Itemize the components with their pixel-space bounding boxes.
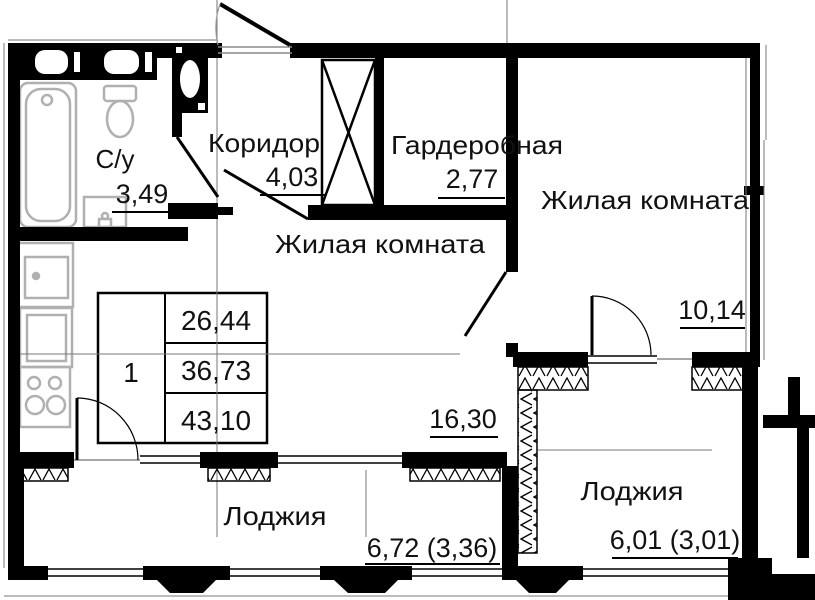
wall-right bbox=[750, 43, 760, 363]
entrance-threshold bbox=[218, 47, 292, 53]
room-label-corridor: Коридор bbox=[208, 128, 320, 158]
room-area-living-second: 10,14 bbox=[678, 295, 746, 325]
unit-number: 1 bbox=[123, 357, 139, 388]
rightroom-door-leaf bbox=[465, 272, 506, 336]
facade-pilaster-c bbox=[334, 580, 398, 593]
facade-pilaster-d bbox=[516, 580, 569, 593]
wall-rightroom-bottom-a bbox=[513, 352, 588, 367]
room-label-living-second: Жилая комната bbox=[541, 185, 750, 215]
wall-neighbor-c bbox=[797, 428, 809, 558]
window-main-room-b bbox=[278, 456, 402, 463]
floor-plan: С/у 3,49 Коридор 4,03 Гардеробная 2,77 Ж… bbox=[0, 0, 815, 600]
room-area-loggia-left: 6,72 (3,36) bbox=[367, 533, 498, 563]
entrance-door bbox=[216, 4, 290, 45]
kitchen-counter bbox=[20, 308, 72, 367]
window-facade-a bbox=[48, 569, 143, 576]
window-facade-b bbox=[230, 569, 320, 576]
wall-corridor-left bbox=[168, 203, 218, 219]
room-label-wardrobe: Гардеробная bbox=[391, 130, 563, 160]
wall-loggia-right-side bbox=[742, 367, 758, 563]
kitchen-stove bbox=[20, 367, 70, 427]
unit-area-main: 36,73 bbox=[181, 355, 251, 386]
wall-loggia-divider bbox=[502, 466, 518, 578]
wall-wardrobe-right bbox=[375, 58, 384, 210]
wall-loggia-left-side bbox=[8, 468, 24, 568]
window-right-room bbox=[588, 356, 657, 363]
wall-rightroom-bottom-b bbox=[692, 352, 760, 367]
room-label-bathroom: С/у bbox=[96, 144, 135, 174]
wall-bottom-a bbox=[8, 452, 74, 468]
unit-area-living: 26,44 bbox=[181, 305, 251, 336]
floor-plan-page: С/у 3,49 Коридор 4,03 Гардеробная 2,77 Ж… bbox=[0, 0, 815, 600]
room-label-living-main: Жилая комната bbox=[275, 229, 486, 259]
facade-pilaster-b bbox=[157, 580, 216, 593]
window-main-room-a bbox=[140, 456, 200, 463]
wall-bathroom-right bbox=[172, 113, 182, 137]
facade-block-c bbox=[320, 566, 412, 580]
wall-bottom-c bbox=[402, 452, 507, 468]
wall-central bbox=[506, 57, 518, 272]
toilet bbox=[104, 86, 136, 137]
wall-top-right bbox=[290, 43, 760, 58]
room-area-bathroom: 3,49 bbox=[116, 179, 169, 209]
room-area-corridor: 4,03 bbox=[266, 162, 319, 192]
wall-corridor-stub bbox=[218, 207, 233, 215]
room-label-loggia-left: Лоджия bbox=[224, 501, 327, 531]
room-area-living-main: 16,30 bbox=[429, 404, 497, 434]
wall-closet-bottom bbox=[308, 205, 514, 220]
room-area-loggia-right: 6,01 (3,01) bbox=[610, 525, 741, 555]
balcony-door-right bbox=[592, 296, 651, 355]
room-label-loggia-right: Лоджия bbox=[581, 476, 684, 506]
room-area-wardrobe: 2,77 bbox=[446, 164, 499, 194]
wall-bathroom-bottom bbox=[14, 227, 188, 241]
window-facade-right bbox=[583, 569, 728, 576]
wall-neighbor-b bbox=[788, 377, 800, 417]
facade-block-a bbox=[8, 566, 48, 580]
wall-left bbox=[8, 43, 20, 470]
wardrobe-cabinet bbox=[322, 60, 375, 205]
unit-area-total: 43,10 bbox=[181, 405, 251, 436]
wall-bottom-b bbox=[200, 452, 278, 468]
bathtub bbox=[20, 83, 76, 227]
facade-right-notch bbox=[772, 558, 815, 574]
kitchen-sink-cabinet bbox=[18, 243, 73, 307]
window-facade-c bbox=[412, 569, 502, 576]
facade-block-d bbox=[502, 566, 583, 580]
facade-block-b bbox=[143, 566, 230, 580]
